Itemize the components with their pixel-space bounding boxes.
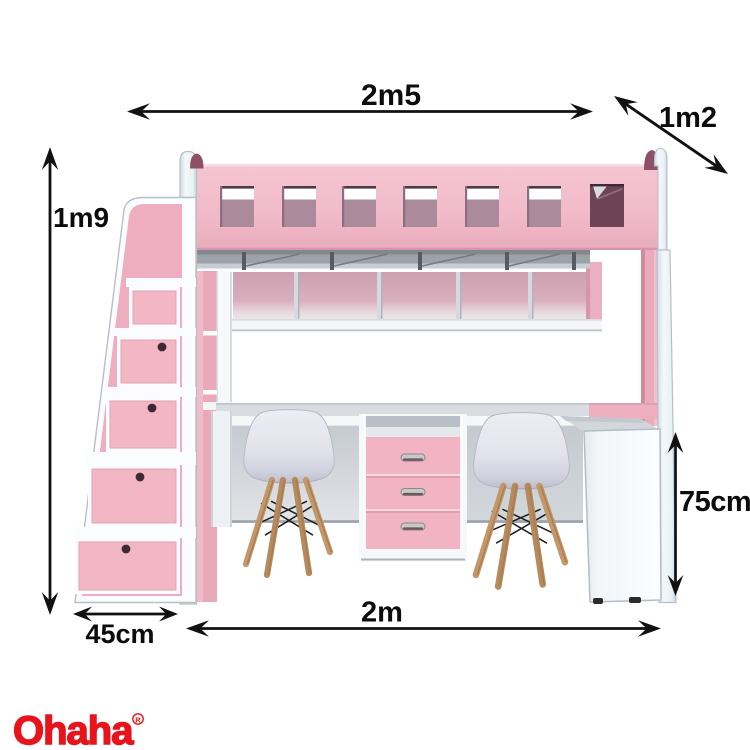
svg-text:R: R bbox=[135, 716, 141, 725]
svg-text:75cm: 75cm bbox=[679, 486, 750, 518]
svg-text:1m9: 1m9 bbox=[53, 202, 109, 233]
svg-text:2m5: 2m5 bbox=[361, 79, 421, 112]
svg-text:Ohaha: Ohaha bbox=[13, 709, 134, 750]
svg-text:45cm: 45cm bbox=[85, 619, 154, 649]
svg-text:1m2: 1m2 bbox=[659, 102, 717, 134]
svg-text:2m: 2m bbox=[361, 597, 403, 629]
